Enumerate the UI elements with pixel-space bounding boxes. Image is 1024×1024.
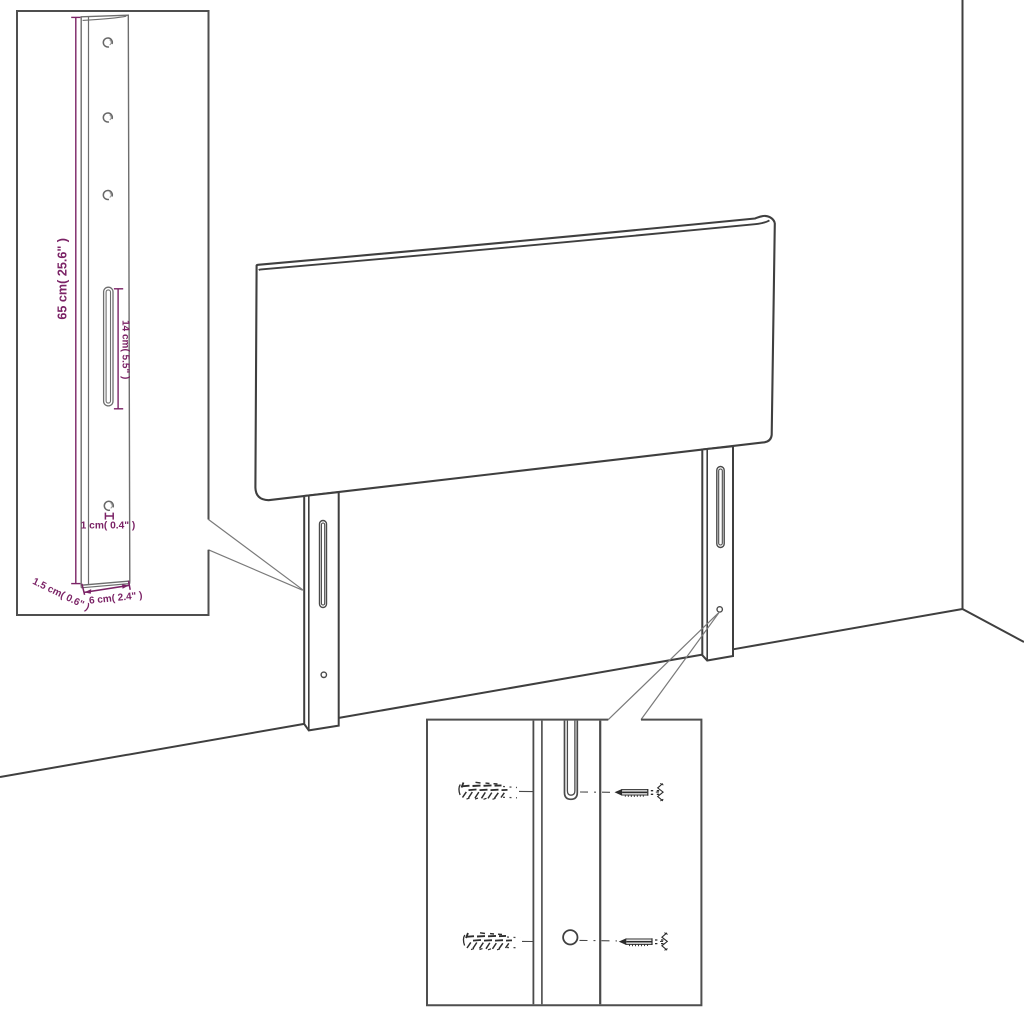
svg-text:6 cm( 2.4" ): 6 cm( 2.4" ) — [88, 590, 143, 607]
svg-text:65 cm( 25.6" ): 65 cm( 25.6" ) — [55, 238, 69, 320]
svg-text:1 cm( 0.4" ): 1 cm( 0.4" ) — [81, 520, 136, 531]
svg-text:14 cm( 5.5" ): 14 cm( 5.5" ) — [119, 320, 130, 379]
